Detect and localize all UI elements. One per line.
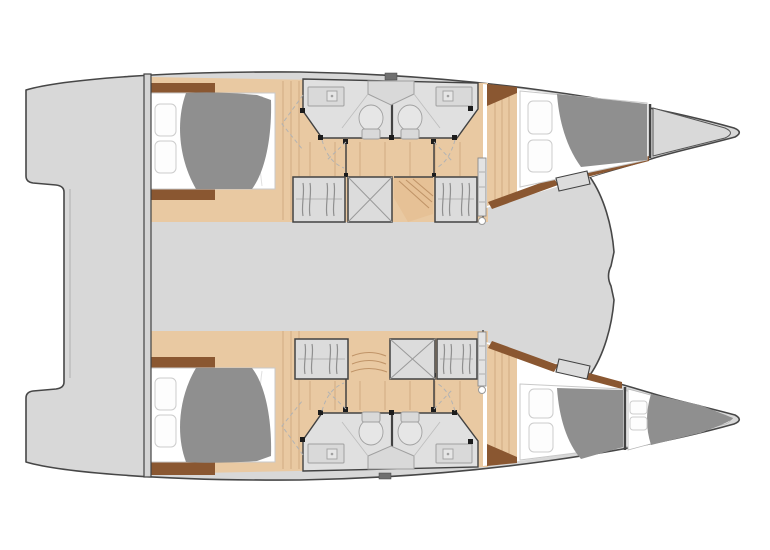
toilet xyxy=(359,419,383,445)
upper-forward-cabin xyxy=(520,91,731,191)
toilet xyxy=(398,419,422,445)
hatch xyxy=(379,473,391,479)
hatch xyxy=(385,73,397,80)
pillow xyxy=(529,389,553,418)
toilet xyxy=(359,105,383,131)
toilet-tank xyxy=(401,129,419,139)
lower-aft-cabin xyxy=(151,357,275,475)
upper-hull xyxy=(151,73,731,225)
duvet xyxy=(180,92,271,189)
duvet xyxy=(180,368,271,463)
cabin-door-leaf xyxy=(478,332,486,386)
pillow xyxy=(630,401,647,414)
shelf xyxy=(151,462,215,475)
faucet-dot xyxy=(331,453,334,456)
toilet-tank xyxy=(362,412,380,422)
pillow xyxy=(630,417,647,430)
shelf xyxy=(151,188,215,200)
pillow xyxy=(528,101,552,134)
toilet-tank xyxy=(362,129,380,139)
catamaran-floor-plan xyxy=(0,0,770,550)
toilet xyxy=(398,105,422,131)
wardrobe xyxy=(293,177,345,222)
toilet-tank xyxy=(401,412,419,422)
vanity-counter xyxy=(436,444,472,463)
upper-aft-cabin xyxy=(151,83,275,200)
faucet-dot xyxy=(447,95,450,98)
faucet-dot xyxy=(331,95,334,98)
door-knob xyxy=(479,387,486,394)
pillow xyxy=(155,415,176,447)
lower-hull xyxy=(151,330,733,479)
pillow xyxy=(529,423,553,452)
pillow xyxy=(155,104,176,136)
faucet-dot xyxy=(447,453,450,456)
door-knob xyxy=(479,218,486,225)
duvet xyxy=(647,394,733,445)
transom-wall xyxy=(144,74,151,477)
wardrobe xyxy=(435,177,477,222)
pillow xyxy=(155,378,176,410)
vanity-counter xyxy=(436,87,472,106)
floor-plan-page xyxy=(0,0,770,550)
vanity-counter xyxy=(308,87,344,106)
pillow xyxy=(528,140,552,172)
vanity-counter xyxy=(308,444,344,463)
pillow xyxy=(155,141,176,173)
